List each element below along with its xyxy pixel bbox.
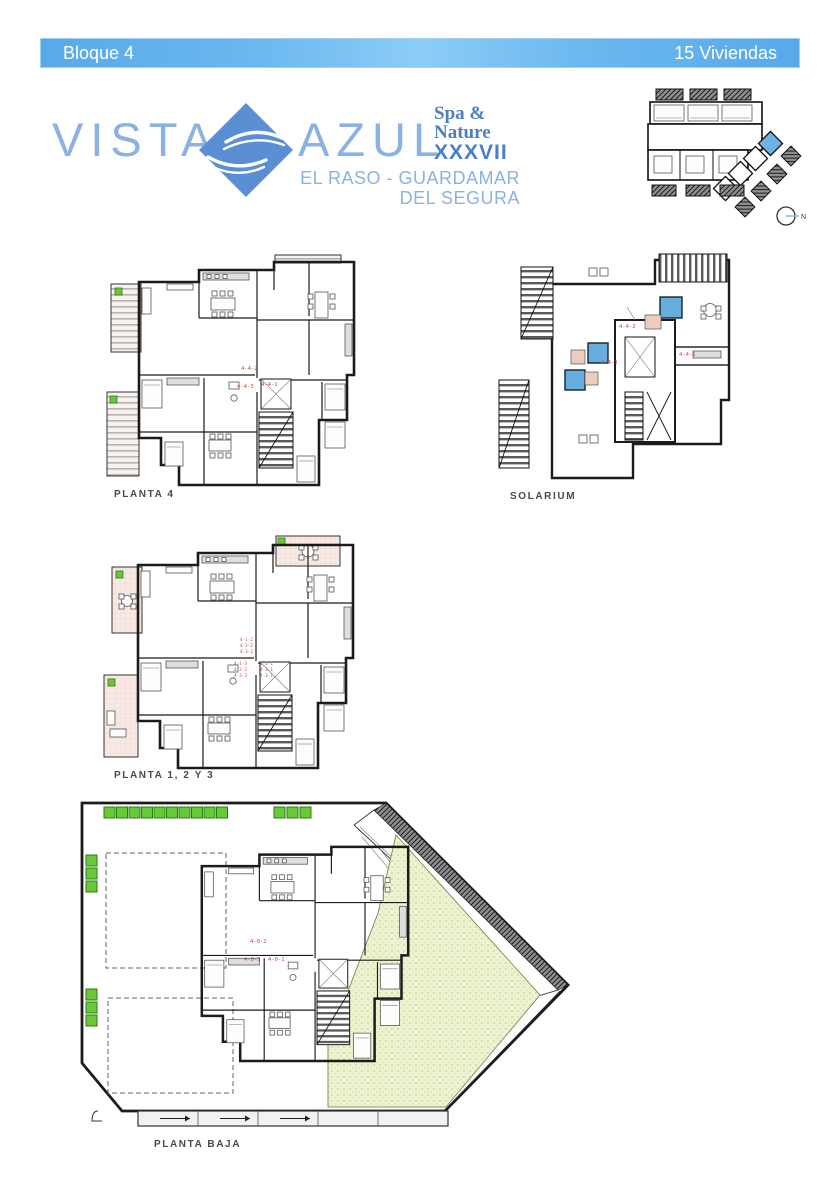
planta-1-2-3-label: PLANTA 1, 2 Y 3 <box>114 770 214 781</box>
parking-row <box>656 89 683 100</box>
unit-label: 4-1-2 <box>240 637 253 643</box>
tagline-nature: Nature <box>434 122 491 143</box>
parking-row <box>652 185 676 196</box>
unit-label: 4-4-2 <box>241 366 258 372</box>
pergola-terrace <box>107 392 139 476</box>
header-bar: Bloque 4 15 Viviendas <box>40 38 800 68</box>
unit-label: 4-4-1 <box>261 382 278 388</box>
unit-label: 4-4-3 <box>601 360 618 366</box>
pergola-strip <box>659 254 727 282</box>
ac-unit-icon <box>110 396 117 403</box>
unit-label: 4-2-2 <box>240 643 253 649</box>
parking-row <box>690 89 717 100</box>
site-key-plan: N <box>640 85 818 237</box>
unit-label: 4-2-3 <box>234 667 247 673</box>
unit-label: 4-0-3 <box>244 957 261 963</box>
ac-unit-icon <box>115 288 122 295</box>
plan-sheet-page: Bloque 4 15 Viviendas VISTA AZUL Spa & N… <box>0 0 840 1187</box>
planta-4-label: PLANTA 4 <box>114 489 175 500</box>
compass-north-label: N <box>801 214 806 221</box>
planta-1-2-3-floorplan: 4-1-2 4-2-2 4-3-2 4-1-3 4-2-3 4-3-3 4-1-… <box>100 533 362 773</box>
terrace-limit-dashed <box>106 853 226 968</box>
tagline-roman-numeral: XXXVII <box>434 143 508 162</box>
logo-location: EL RASO - GUARDAMAR DEL SEGURA <box>238 168 520 208</box>
solarium-floorplan: 4-4-2 4-4-3 4-4-1 <box>497 252 747 492</box>
unit-label: 4-4-3 <box>237 384 254 390</box>
unit-label: 4-4-1 <box>679 352 696 358</box>
unit-label: 4-1-3 <box>234 661 247 667</box>
compass-icon: N <box>777 207 806 225</box>
parking-row <box>724 89 751 100</box>
entrance-walkway <box>92 1111 448 1126</box>
unit-label: 4-0-1 <box>268 957 285 963</box>
unit-label: 4-2-1 <box>260 667 273 673</box>
unit-label: 4-3-1 <box>260 673 273 679</box>
location-line1: EL RASO - GUARDAMAR <box>300 168 520 188</box>
location-line2: DEL SEGURA <box>400 188 520 208</box>
ac-unit-icon <box>108 679 115 686</box>
plunge-pool <box>565 370 585 390</box>
dwellings-count: 15 Viviendas <box>674 43 777 64</box>
unit-label: 4-3-3 <box>234 673 247 679</box>
logo-tagline: Spa & Nature XXXVII <box>434 104 508 162</box>
planta-baja-floorplan: 4-0-2 4-0-3 4-0-1 <box>78 793 574 1143</box>
parking-row <box>720 185 744 196</box>
parking-row <box>686 185 710 196</box>
planta-baja-label: PLANTA BAJA <box>154 1139 241 1150</box>
terrace-limit-dashed <box>108 998 233 1093</box>
tagline-spa: Spa & <box>434 103 485 124</box>
plunge-pool <box>660 297 682 318</box>
unit-label: 4-0-2 <box>250 939 267 945</box>
unit-label: 4-3-2 <box>240 649 253 655</box>
hedge-bushes <box>86 807 311 1026</box>
unit-label: 4-1-1 <box>260 661 273 667</box>
solarium-label: SOLARIUM <box>510 491 576 502</box>
planta-4-floorplan: 4-4-2 4-4-3 4-4-1 <box>103 252 359 492</box>
unit-label: 4-4-2 <box>619 324 636 330</box>
block-title: Bloque 4 <box>63 43 134 64</box>
logo-word-azul: AZUL <box>298 112 446 167</box>
ac-unit-icon <box>116 571 123 578</box>
